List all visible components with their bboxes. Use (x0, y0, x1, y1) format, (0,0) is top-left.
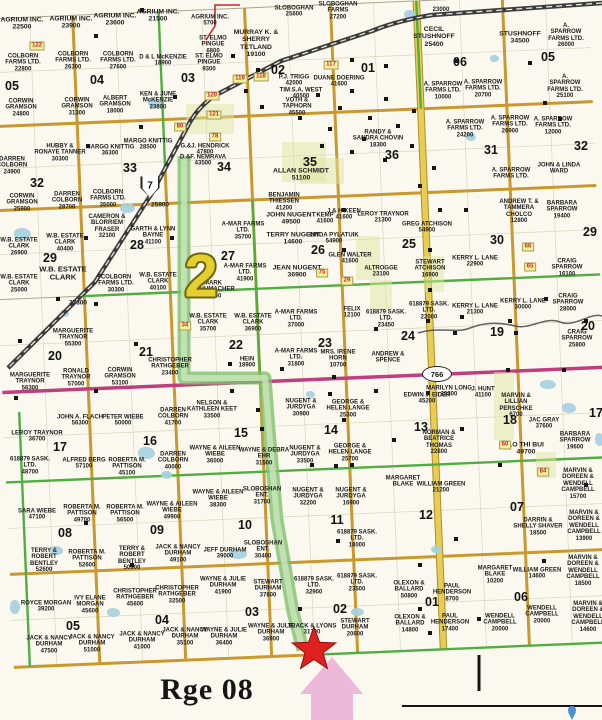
parcel-label: 618879 SASK. LTD.48700 (4, 456, 56, 475)
parcel-label: BARBARA SPARROW19400 (542, 200, 582, 219)
lakes-layer (0, 0, 602, 720)
section-number: 04 (155, 613, 169, 627)
farmstead-dot (514, 331, 518, 335)
parcel-label: G.&J. HENDRICK47800 (180, 144, 229, 157)
section-number: 18 (503, 413, 517, 427)
range-label: Rge 08 (160, 673, 253, 707)
parcel-label: W.B. ESTATE CLARK35700 (182, 313, 234, 332)
township-highlight-number: 2 (184, 242, 217, 311)
section-number: 06 (514, 590, 528, 604)
farmstead-dot (94, 34, 98, 38)
parcel-label: WENDELL CAMPBELL20000 (516, 605, 568, 624)
farmstead-dot (134, 342, 138, 346)
parcel-label: KERRY L. LANE22900 (452, 256, 498, 269)
slough-lake (138, 447, 155, 459)
parcel-label: D.&F. NEMRAVA43500 (180, 155, 226, 168)
farmstead-dot (328, 392, 332, 396)
slough-lake (306, 391, 315, 398)
farmstead-dot (418, 563, 422, 567)
parcel-label: ALBERT GRAMSON18000 (89, 95, 141, 114)
section-number: 23 (318, 336, 332, 350)
parcel-label: A-MAR FARMS LTD.37000 (270, 309, 322, 328)
slough-lake (540, 380, 556, 389)
slough-lake (351, 608, 364, 616)
parcel-label: DARREN COLBORN41700 (147, 407, 199, 426)
direction-arrow[interactable] (300, 657, 363, 720)
parcel-label: MARILYN LONG29300 (426, 386, 472, 399)
section-number: 02 (333, 602, 347, 616)
section-number: 21 (139, 345, 153, 359)
grid-road-marker: 120 (204, 92, 219, 101)
grid-road (0, 0, 602, 667)
farmstead-dot (584, 319, 588, 323)
parcel-label: WAYNE & JULIE DURHAM36400 (198, 627, 250, 646)
farmstead-dot (453, 331, 457, 335)
farmstead-dot (231, 54, 235, 58)
parcel-label: GARTH & LYNN BAYNE41100 (127, 226, 179, 245)
section-number: 13 (414, 420, 428, 434)
slough-lake (107, 608, 120, 617)
parcel-label: HEIN18900 (239, 357, 256, 370)
slough-lake (50, 546, 63, 555)
grid-road-marker: 75 (316, 269, 328, 278)
parcel-label: ROBERTA M. PATTISON56500 (99, 504, 151, 523)
parcel-label: JOHN & LINDA WARD (538, 163, 581, 176)
farmstead-dot (350, 150, 354, 154)
railway-line (8, 3, 602, 368)
parcel-label: SLOBOSHAN ENT.31700 (236, 486, 288, 505)
parcel-label: P.J. TRIGG42000 (279, 75, 310, 88)
section-number: 15 (234, 426, 248, 440)
section-number: 31 (484, 143, 498, 157)
grid-road-marker: 119 (233, 75, 248, 84)
farmstead-dot (374, 327, 378, 331)
parcel-label: ALFRED BERG57100 (62, 458, 105, 471)
parcel-label: DUANE DOERING41600 (313, 76, 364, 89)
parcel-label: ST. ELMO PINGUE9300 (183, 53, 235, 72)
parcel-label: PAUL HENDERSON17400 (424, 613, 476, 632)
farmstead-dot (342, 208, 346, 212)
parcel-label: DARRIN & SHELLY SHAVER18500 (512, 517, 564, 536)
farmstead-dot (310, 463, 314, 467)
farmstead-dot (244, 89, 248, 93)
parcel-label: WILLIAM GREEN21200 (417, 482, 466, 495)
farmstead-dot (256, 68, 260, 72)
parcel-label: SLOBOSHAN ENT.30400 (237, 540, 289, 559)
parcel-label: ROYCE MORGAN39200 (21, 601, 71, 614)
section-number: 03 (181, 71, 195, 85)
parcel-label: CHRISTOPHER RATHGEBER45600 (109, 588, 161, 607)
parcel-label: BENJAMIN THIESSEN41200 (258, 192, 310, 211)
railway-route-layer (0, 0, 602, 720)
farmstead-dot (170, 236, 174, 240)
farmstead-dot (383, 158, 387, 162)
farmstead-dot (428, 288, 432, 292)
parcel-label: COLBORN FARMS LTD.27600 (92, 51, 144, 70)
farmstead-dot (410, 144, 414, 148)
farmstead-dot (332, 375, 336, 379)
farmstead-dot (228, 362, 232, 366)
annotations-layer (0, 0, 602, 720)
parcel-label: VOTH & TAPHORN45500 (271, 97, 323, 116)
scanned-map-page: 0504030201060532333435363132292827262530… (0, 0, 602, 720)
highway-766-shield: 766 (422, 366, 452, 382)
farmstead-dot (543, 101, 547, 105)
parcel-label: WAYNE & AILEEN WIEBE49900 (146, 501, 198, 520)
section-number: 08 (58, 526, 72, 540)
parcel-label: MARVIN & DOREEN & WENDELL CAMPBELL13900 (567, 510, 600, 542)
grid-road-marker: 78 (209, 133, 221, 142)
highlighted-parcel-tint (370, 280, 392, 310)
parcel-label: CORWIN GRAMSON53100 (94, 367, 146, 386)
section-number: 01 (361, 61, 375, 75)
section-number: 29 (43, 251, 57, 265)
section-number: 16 (143, 434, 157, 448)
parcel-label: JACK & NANCY DURHAM49100 (152, 544, 204, 563)
parcel-label: GREG ATCHISON54900 (402, 222, 452, 235)
parcel-label: MARGO KNITTIG36300 (86, 145, 135, 158)
parcel-label: CRAIG SPARROW28000 (551, 293, 585, 312)
farmstead-dot (230, 389, 234, 393)
farmstead-dot (455, 59, 459, 63)
parcel-label: MARGO KNITTIG28500 (124, 139, 173, 152)
farmstead-dot (139, 125, 143, 129)
farmstead-dot (334, 464, 338, 468)
highlighted-parcel-tint (300, 158, 344, 184)
tints-layer (0, 0, 602, 720)
section-number: 35 (303, 155, 317, 169)
parcel-label: DARREN COLBORN28700 (41, 191, 93, 210)
parcel-label: MARGARET BLAKE10200 (469, 565, 521, 584)
parcel-label: 618879 SASK. LTD.23500 (331, 573, 383, 592)
range-line-road (416, 1, 443, 649)
highlighted-route (184, 156, 303, 650)
farmstead-dot (584, 483, 588, 487)
highway-766-road (2, 367, 602, 392)
parcel-label: MARVIN & DOREEN & WENDELL CAMPBELL15700 (561, 468, 594, 500)
parcel-label: ROBERTA M. PATTISON49700 (56, 504, 108, 523)
section-number: 27 (221, 249, 235, 263)
parcel-label: MARGARET BLAKE (377, 476, 429, 489)
farmstead-dot (384, 64, 388, 68)
parcel-label: W.B. ESTATE CLARK (32, 266, 94, 283)
farmstead-dot (298, 116, 302, 120)
farmstead-dot (368, 116, 372, 120)
road-number-label: 37300 (69, 300, 87, 307)
parcel-label: CHRISTOPHER RATHGEBER23400 (144, 357, 196, 376)
farmstead-dot (477, 617, 481, 621)
parcel-label: COLBORN FARMS LTD.35000 (82, 189, 134, 208)
farmstead-dot (508, 319, 512, 323)
farmstead-dot (18, 339, 22, 343)
slough-lake (120, 203, 135, 213)
farmstead-dot (432, 166, 436, 170)
parcel-label: W.B. ESTATE CLARK40100 (132, 272, 184, 291)
parcel-label: NUGENT & JURDYGA16900 (325, 487, 377, 506)
farmstead-dot (362, 137, 366, 141)
section-number: 34 (217, 160, 231, 174)
parcel-label: NUGENT & JURDYGA33500 (279, 445, 331, 464)
farmstead-dot (130, 563, 134, 567)
parcel-label: WAYNE & JULIE DURHAM36900 (245, 623, 297, 642)
grid-road-marker: 34 (179, 322, 191, 331)
parcel-label: WAYNE & JULIE DURHAM41900 (197, 576, 249, 595)
parcel-label: PAUL HENDERSON8700 (426, 583, 478, 602)
parcel-label: W.B. ESTATE CLARK25000 (0, 274, 45, 293)
parcel-label: WAYNE & DEBRA EHR31500 (238, 447, 290, 466)
parcel-label: LO THI BUI49700 (508, 442, 544, 457)
section-number: 06 (453, 55, 467, 69)
farmstead-dot (428, 248, 432, 252)
grid-road-marker: 29 (341, 277, 353, 286)
parcel-label: JEAN NUGENT36900 (273, 265, 322, 280)
farmstead-dot (342, 248, 346, 252)
section-number: 17 (53, 440, 67, 454)
road-markers-layer: 122119118117120121807834752966656084 (0, 0, 602, 720)
section-number: 04 (90, 73, 104, 87)
farmstead-dot (396, 124, 400, 128)
farmstead-dot (173, 95, 177, 99)
parcel-label: MARVIN & LILLIAN PERSCHKE6700 (490, 393, 542, 419)
farmstead-dot (342, 418, 346, 422)
slough-lake (148, 98, 161, 108)
parcel-label: 618879 SASK. LTD.22000 (403, 301, 455, 320)
section-number: 22 (229, 338, 243, 352)
parcel-label: A-MAR FARMS LTD.35700 (217, 221, 269, 240)
parcel-label: CORWIN GRAMSON31300 (51, 97, 103, 116)
grid-road-marker: 84 (537, 468, 549, 477)
section-number: 20 (48, 349, 62, 363)
farmstead-dot (320, 144, 324, 148)
road-number-label: 25800 (151, 202, 169, 209)
section-numbers-layer: 0504030201060532333435363132292827262530… (0, 0, 602, 720)
farmstead-dot (84, 521, 88, 525)
parcel-label: CORWIN GRAMSON24800 (0, 98, 47, 117)
farmstead-dot (418, 607, 422, 611)
farmstead-dot (94, 389, 98, 393)
parcel-label: CHRISTOPHER RATHGEBER32500 (151, 585, 203, 604)
parcel-label: AGRIUM INC.23600 (93, 13, 136, 28)
parcel-label: ROBERTA M. PATTISON45100 (101, 457, 153, 476)
red-boundary-line (206, 5, 240, 40)
parcel-label: D & L McKENZIE18900 (139, 55, 187, 68)
parcel-label: RONALD TRAYNOR57000 (50, 368, 102, 387)
farmstead-dot (528, 61, 532, 65)
farmstead-dot (260, 105, 264, 109)
farmstead-dot (86, 144, 90, 148)
green-road (0, 0, 602, 667)
grid-road-marker: 118 (254, 73, 269, 82)
parcel-label: A. SPARROW FARMS LTD.10000 (417, 81, 469, 100)
parcel-label: STEWART DURHAM37600 (242, 579, 294, 598)
section-number: 26 (311, 243, 325, 257)
parcel-label: MARGUERITE TRAYNOR56300 (4, 372, 56, 391)
parcel-label: SLOBOGHAN FARMS27200 (312, 1, 364, 20)
parcel-label: DARREN COLBORN40000 (147, 451, 199, 470)
star-marker[interactable] (292, 627, 336, 669)
parcel-label: TERRY & ROBERT BENTLEY50900 (106, 546, 158, 572)
parcel-label: MRS. IRENE HORN10700 (312, 349, 364, 368)
parcel-label: BARBARA SPARROW19600 (560, 431, 591, 450)
parcel-label: MARVIN & DOREEN & WENDELL CAMPBELL18500 (566, 555, 599, 587)
parcel-label: STEWART ATCHISON16900 (404, 259, 456, 278)
section-number: 29 (583, 225, 597, 239)
parcel-label: AGRIUM INC.22500 (0, 17, 43, 32)
farmstead-dot (84, 236, 88, 240)
parcel-label: CRAIG SPARROW16100 (550, 258, 585, 277)
parcel-label: OLEXON & BALLARD14800 (384, 614, 436, 633)
parcels-layer: AGRIUM INC.22500AGRIUM INC.23900AGRIUM I… (0, 0, 602, 720)
farmstead-dot (94, 302, 98, 306)
grid-road-marker: 65 (524, 263, 536, 272)
parcel-label: JAC GRAY37600 (529, 418, 559, 431)
parcel-label: EDWIN J. EIDER45200 (404, 393, 451, 406)
parcel-label: A. SPARROW FARMS LTD.12000 (529, 116, 578, 135)
parcel-label: A. SPARROW FARMS LTD.26900 (484, 115, 536, 134)
parcel-label: CECIL STUSHNOFF25400 (405, 26, 463, 48)
misc-labels-layer: 3730025800 (0, 0, 602, 720)
parcel-label: OLEXON & BALLARD50800 (383, 580, 435, 599)
parcel-label: GEORGE & HELEN LANGE25700 (324, 443, 376, 462)
grid-road-marker: 60 (499, 441, 511, 450)
parcel-label: COLBORN FARMS LTD.30300 (90, 274, 142, 293)
highlighted-parcel-tint (186, 104, 234, 134)
farmstead-dot (350, 58, 354, 62)
section-number: 17 (589, 406, 602, 420)
parcel-label: FELIX12100 (343, 307, 360, 320)
section-number: 05 (66, 619, 80, 633)
farmstead-dot (298, 607, 302, 611)
parcel-label: NUGENT & JURDYGA32200 (282, 487, 334, 506)
farmstead-dot (544, 297, 548, 301)
farmstead-dot (350, 89, 354, 93)
section-number: 24 (401, 329, 415, 343)
grid-road-marker: 121 (206, 111, 221, 120)
parcel-label: STEWART DURHAM20600 (329, 618, 381, 637)
section-number: 36 (385, 148, 399, 162)
section-number: 05 (541, 50, 555, 64)
parcel-label: JACK & NANCY DURHAM51000 (66, 634, 118, 653)
parcel-label: LEROY TRAYNOR21300 (357, 212, 408, 225)
parcel-label: W.B. ESTATE CLARK40400 (39, 233, 91, 252)
parcel-label: TERRY NUGENT14600 (266, 232, 319, 247)
farmstead-dot (460, 427, 464, 431)
section-number: 09 (150, 523, 164, 537)
parcel-label: AGRIUM INC.21500 (136, 9, 179, 24)
parcel-label: DARREN COLBORN24900 (0, 156, 38, 175)
highway-7-label: 7 (147, 180, 153, 191)
farmstead-dot (280, 367, 284, 371)
slough-lake (404, 10, 416, 19)
rural-municipality-cadastral-map[interactable]: 0504030201060532333435363132292827262530… (0, 0, 602, 720)
highlighted-parcel-tint (424, 256, 444, 292)
parcel-label: KEN & JUNE McKENZIE23800 (132, 91, 184, 110)
parcel-label: TIM S.A. WEST40500 (280, 88, 323, 101)
farmstead-dot (328, 127, 332, 131)
parcel-label: JOHN A. FLACH56300 (57, 415, 103, 428)
slough-lake (562, 403, 576, 413)
parcel-label: W.B. ESTATE CLARK26900 (0, 237, 45, 256)
parcel-label: ANDREW T. & TAMMERA CHOLCO12800 (493, 199, 545, 225)
farmstead-dot (498, 463, 502, 467)
parcel-label: JEFF DURHAM39000 (204, 548, 247, 561)
parcel-label: NORMAN & BEATRICE THOMAS22800 (413, 430, 465, 456)
parcel-label: CAMERON & BLORRIEM FRASER32100 (81, 214, 133, 240)
section-number: 10 (238, 518, 252, 532)
farmstead-dot (428, 631, 432, 635)
parcel-label: LEROY TRAYNOR36700 (11, 431, 62, 444)
parcel-label: GLEN WALTER41600 (328, 253, 371, 266)
parcel-label: GEORGE & HELEN LANGE25300 (322, 399, 374, 418)
parcel-label: WILLIAM GREEN14600 (513, 568, 562, 581)
section-number: 05 (5, 79, 19, 93)
parcel-label: ALLAN SCHMIDT51100 (273, 168, 329, 183)
farmstead-dot (350, 463, 354, 467)
parcel-label: NELSON & KATHLEEN KEET33500 (186, 400, 238, 419)
parcel-label: MARGUERITE TRAYNOR55300 (47, 328, 99, 347)
parcel-label: MARVIN & DOREEN & WENDELL CAMPBELL14600 (571, 601, 602, 633)
farmstead-dot (374, 389, 378, 393)
parcel-label: 618879 SASK. LTD.32900 (288, 576, 340, 595)
parcel-label: ST. ELMO PINGUE6800 (187, 35, 239, 54)
section-number: 32 (30, 176, 44, 190)
section-number: 14 (324, 423, 338, 437)
highway-7-shield: 7 (141, 177, 160, 198)
creek-line (418, 315, 602, 333)
grid-road-marker: 117 (324, 61, 339, 70)
parcel-label: JACK & NANCY DURHAM47500 (23, 635, 75, 654)
slough-lake (10, 600, 20, 614)
parcel-label: A. SPARROW FARMS LTD.20700 (457, 79, 509, 98)
farmstead-dot (392, 438, 396, 442)
slough-lake (595, 433, 602, 446)
section-number: 33 (123, 161, 137, 175)
farmstead-dot (506, 368, 510, 372)
farmstead-dot (260, 427, 264, 431)
parcel-label: WAYNE & AILEEN WIEBE38300 (192, 489, 244, 508)
slough-lake (490, 55, 499, 62)
parcel-label: J. HUNT41100 (471, 387, 494, 400)
farmstead-dot (56, 297, 60, 301)
section-number: 02 (271, 63, 285, 77)
slough-lake (431, 546, 442, 553)
parcel-label: COLBORN FARMS LTD.22800 (0, 53, 49, 72)
section-number: 25 (402, 237, 416, 251)
parcel-label: KEMP41600 (316, 213, 333, 226)
parcel-label: J & H KEEN41600 (327, 209, 361, 222)
farmstead-dot (562, 368, 566, 372)
parcel-label: TRACK & LYONS31700 (288, 624, 337, 637)
highway-766-label: 766 (431, 370, 444, 379)
parcel-label: SLOBOGHAN25600 (275, 6, 314, 19)
farmstead-dot (464, 208, 468, 212)
parcel-label: ROBERTA M. PATTISON52600 (61, 549, 113, 568)
farmstead-dot (460, 315, 464, 319)
parcel-label: JOHN NUGENT49500 (266, 212, 315, 227)
parcel-label: TERRY & ROBERT BENTLEY52600 (18, 548, 70, 574)
section-number: 30 (490, 233, 504, 247)
farmstead-dot (454, 537, 458, 541)
parcel-label: A. SPARROW FARMS LTD. (485, 168, 537, 181)
farmstead-dot (140, 8, 144, 12)
farmstead-dot (558, 117, 562, 121)
parcel-label: CRAIG SPARROW25800 (562, 329, 593, 348)
grid-road-marker: 80 (174, 123, 186, 132)
grid-road-marker: 122 (29, 42, 44, 51)
parcel-label: AGRIUM INC.23900 (49, 16, 92, 31)
section-number: 28 (130, 238, 144, 252)
grid-road-marker: 66 (522, 243, 534, 252)
